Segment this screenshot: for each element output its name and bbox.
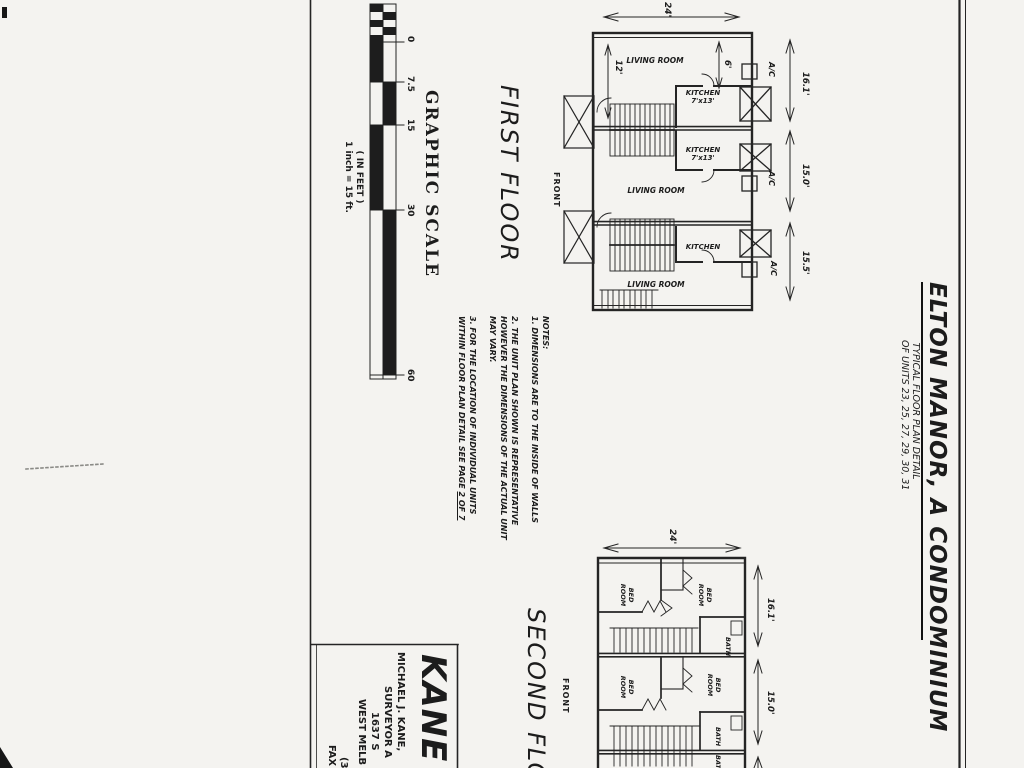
second-floor-title: SECOND FLOOR	[522, 608, 550, 768]
notes-block: NOTES: 1. DIMENSIONS ARE TO THE INSIDE O…	[456, 316, 551, 550]
scale-tick-15: 15	[404, 119, 415, 132]
dim-second-unit1: 16.1'	[765, 598, 775, 622]
note-3-line2: WITHIN FLOOR PLAN DETAIL SEE PAGE 2 OF 7	[456, 316, 467, 550]
surveyor-line-1: MICHAEL J. KANE,	[394, 652, 406, 751]
ac-label-1: A/C	[767, 62, 776, 77]
graphic-scale-units-line1: ( IN FEET )	[353, 131, 364, 223]
sheet-title: ELTON MANOR, A CONDOMINIUM	[921, 282, 950, 640]
dim-second-width: 24'	[666, 529, 677, 544]
kitchen-label-1: KITCHEN 7'x13'	[682, 89, 724, 106]
scale-tick-7-5: 7.5	[404, 76, 415, 92]
living-room-label-3: LIVING ROOM	[625, 281, 687, 290]
kitchen-size-2: 7'x13'	[682, 154, 724, 162]
surveyor-line-5: (3	[337, 757, 349, 768]
surveyor-line-3: 1637 S	[368, 712, 380, 751]
scanned-floor-plan-sheet: ELTON MANOR, A CONDOMINIUM TYPICAL FLOOR…	[0, 0, 1024, 768]
second-floor-front-label: FRONT	[561, 678, 570, 714]
living-room-label-2: LIVING ROOM	[625, 187, 687, 196]
note-3-line1: 3. FOR THE LOCATION OF INDIVIDUAL UNITS	[467, 316, 478, 550]
dim-first-living: 12'	[613, 60, 623, 74]
living-room-label-1: LIVING ROOM	[624, 57, 686, 66]
notes-page-ref: 2 OF 7	[457, 491, 466, 520]
ac-label-3: A/C	[769, 261, 778, 276]
graphic-scale-units-line2: 1 inch = 15 ft.	[343, 131, 354, 223]
surveyor-line-4: WEST MELB	[355, 699, 367, 765]
ac-label-2: A/C	[767, 171, 776, 186]
sheet-title-text: ELTON MANOR, A CONDOMINIUM	[924, 282, 950, 732]
note-2-line1: 2. THE UNIT PLAN SHOWN IS REPRESENTATIVE	[509, 316, 520, 550]
sheet-subtitle-line2: OF UNITS 23, 25, 27, 29, 30, 31	[899, 340, 910, 482]
scale-tick-0: 0	[404, 36, 415, 42]
bath-label-3: BATH	[713, 755, 721, 768]
dim-first-unit2: 15.0'	[800, 164, 810, 188]
sheet-subtitle-line1: TYPICAL FLOOR PLAN DETAIL	[910, 340, 921, 482]
bedroom-label-2: BED ROOM	[697, 580, 712, 610]
kitchen-label-3: KITCHEN	[684, 243, 722, 251]
dim-first-unit1: 16.1'	[800, 72, 810, 96]
bedroom-label-4: BED ROOM	[706, 670, 721, 700]
dim-first-unit3: 15.5'	[800, 251, 810, 275]
sheet-subtitle: TYPICAL FLOOR PLAN DETAIL OF UNITS 23, 2…	[899, 340, 921, 482]
second-floor-plan	[598, 544, 762, 768]
first-floor-title: FIRST FLOOR	[495, 85, 523, 263]
note-1: 1. DIMENSIONS ARE TO THE INSIDE OF WALLS	[529, 316, 540, 550]
dim-first-kitchen: 6'	[722, 60, 732, 69]
dim-second-unit2: 15.0'	[765, 691, 775, 715]
note-2-line2: HOWEVER THE DIMENSIONS OF THE ACTUAL UNI…	[498, 316, 509, 550]
kitchen-label-2: KITCHEN 7'x13'	[682, 146, 724, 163]
surveyor-firm-name: KANE LAN	[413, 654, 453, 768]
graphic-scale-units: ( IN FEET ) 1 inch = 15 ft.	[343, 131, 364, 223]
bedroom-label-3: BED ROOM	[619, 672, 634, 702]
notes-heading: NOTES:	[540, 316, 551, 550]
first-floor-front-label: FRONT	[552, 172, 561, 208]
kitchen-size-1: 7'x13'	[682, 97, 724, 105]
dim-first-width: 24'	[661, 2, 672, 17]
bath-label-1: BATH	[723, 637, 731, 656]
scale-tick-30: 30	[404, 204, 415, 217]
graphic-scale-title: GRAPHIC SCALE	[421, 90, 441, 250]
surveyor-line-6: FAX	[325, 745, 337, 766]
bath-label-2: BATH	[713, 727, 721, 746]
note-2-line3: MAY VARY.	[487, 316, 498, 550]
surveyor-line-2: SURVEYOR A	[381, 686, 393, 758]
scale-tick-60: 60	[404, 369, 415, 382]
bedroom-label-1: BED ROOM	[619, 580, 634, 610]
